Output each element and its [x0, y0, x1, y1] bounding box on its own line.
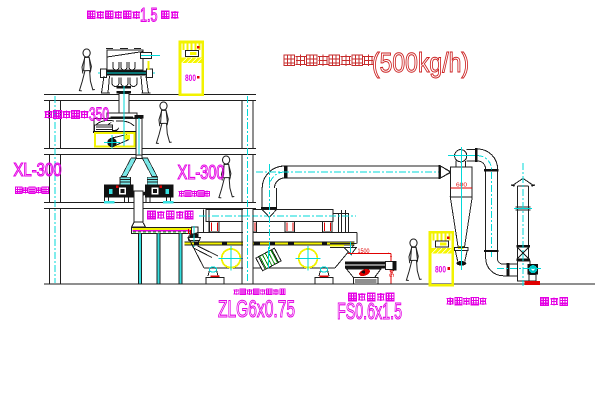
svg-text:ZLG6x0.75: ZLG6x0.75 — [218, 296, 295, 323]
svg-text:XL-300: XL-300 — [178, 162, 225, 184]
svg-text:350: 350 — [89, 105, 109, 125]
svg-text:FS0.6x1.5: FS0.6x1.5 — [337, 298, 402, 324]
svg-text:(500kg/h): (500kg/h) — [372, 47, 469, 78]
svg-text:XL-300: XL-300 — [14, 159, 62, 180]
svg-text:800: 800 — [185, 73, 196, 83]
svg-text:800: 800 — [435, 265, 446, 275]
svg-text:1500: 1500 — [358, 249, 371, 255]
svg-text:1.5: 1.5 — [140, 6, 158, 27]
